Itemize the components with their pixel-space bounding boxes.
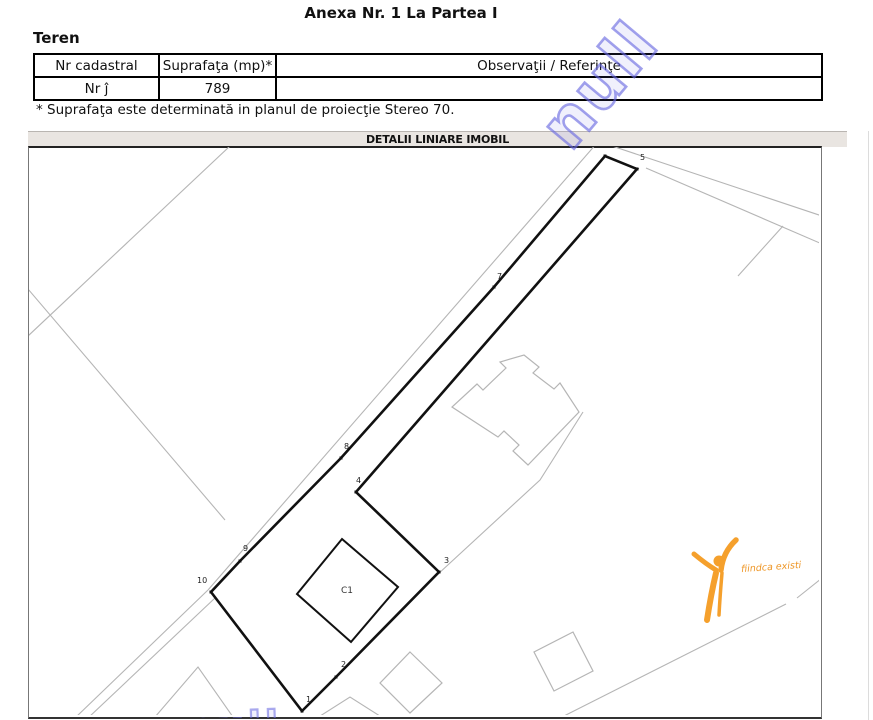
cell-suprafata: 789 (159, 77, 276, 100)
logo-person-icon (686, 536, 744, 628)
table-row: Nr ĵ 789 (34, 77, 822, 100)
footnote: * Suprafaţa este determinată in planul d… (36, 102, 455, 118)
col-header-nr-cadastral: Nr cadastral (34, 54, 159, 77)
cadastral-table: Nr cadastral Suprafaţa (mp)* Observaţii … (33, 53, 823, 101)
section-heading-teren: Teren (33, 29, 80, 47)
page-title: Anexa Nr. 1 La Partea I (0, 4, 802, 22)
cell-nr-cadastral: Nr ĵ (34, 77, 159, 100)
cell-observatii (276, 77, 822, 100)
table-header-row: Nr cadastral Suprafaţa (mp)* Observaţii … (34, 54, 822, 77)
page-edge-line (868, 131, 869, 720)
map-title-bar: DETALII LINIARE IMOBIL (28, 131, 847, 147)
map-plan-area (28, 146, 822, 719)
col-header-suprafata: Suprafaţa (mp)* (159, 54, 276, 77)
col-header-observatii: Observaţii / Referinţe (276, 54, 822, 77)
